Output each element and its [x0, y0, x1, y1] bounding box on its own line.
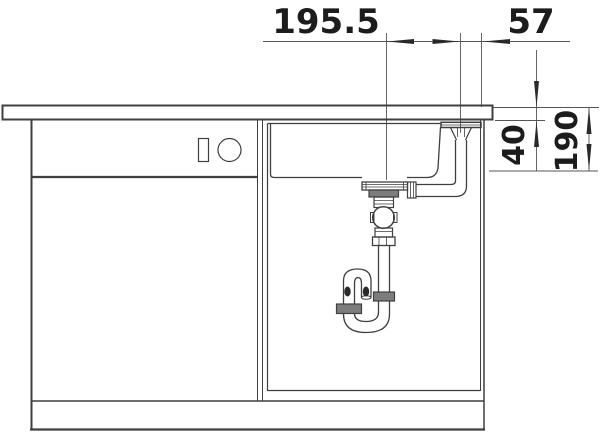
overflow-pipe-outer-wall: [416, 140, 467, 197]
overflow-funnel: [451, 128, 472, 141]
drawer-knob: [218, 139, 241, 162]
hex-nut-facets: [379, 237, 387, 246]
sink-bowl: [271, 124, 441, 178]
tailpiece-collar: [374, 197, 394, 208]
arrow-right-icon: [433, 39, 460, 44]
trap-joint-mark-right: [363, 287, 369, 297]
bowl-bottom-right-and-slant-wall: [407, 127, 441, 178]
trap-inlet-pipe: [379, 301, 390, 314]
dim-label-countertop-thickness: 40: [497, 124, 532, 166]
dim-label-drain-offset: 195.5: [272, 2, 380, 42]
compression-nut-lower: [337, 304, 362, 314]
collar-rings: [374, 201, 394, 205]
arrow-left-icon: [483, 39, 510, 44]
lower-collar: [375, 228, 393, 237]
drawing-canvas: 195.5 57 40 190: [0, 0, 600, 433]
pipe-connector-ribs: [411, 182, 414, 198]
countertop: [3, 106, 493, 120]
hex-nut: [373, 237, 396, 246]
arrow-down-icon: [534, 81, 539, 107]
overflow-assembly: [408, 122, 482, 198]
ball-joint: [373, 207, 395, 229]
dim-label-outlet-height: 190: [550, 110, 585, 173]
trap-joint-mark-left: [344, 287, 350, 297]
compression-nut-upper: [374, 292, 395, 301]
drawer-handle-cutout: [199, 139, 209, 162]
arrow-down-icon: [587, 144, 592, 171]
compartment-outline: [268, 124, 481, 391]
arrow-up-icon: [587, 108, 592, 135]
overflow-funnel-inner: [458, 128, 465, 137]
sink-installation-technical-drawing: 195.5 57 40 190: [0, 0, 600, 433]
strainer-flange-plate: [362, 182, 408, 190]
arrow-left-icon: [387, 39, 414, 44]
tailpipe: [379, 246, 390, 293]
sink-compartment: [268, 124, 481, 391]
drain-strainer-assembly: [362, 182, 408, 301]
countertop-slab: [3, 106, 493, 120]
bowl-left-and-bottom: [271, 124, 363, 178]
strainer-body: [369, 190, 399, 197]
dim-label-overflow-offset: 57: [507, 2, 554, 42]
pipe-connector: [408, 182, 417, 198]
trap-loop-inner: [355, 278, 362, 305]
arrow-up-icon: [534, 121, 539, 147]
base-cabinet: [30, 120, 485, 430]
